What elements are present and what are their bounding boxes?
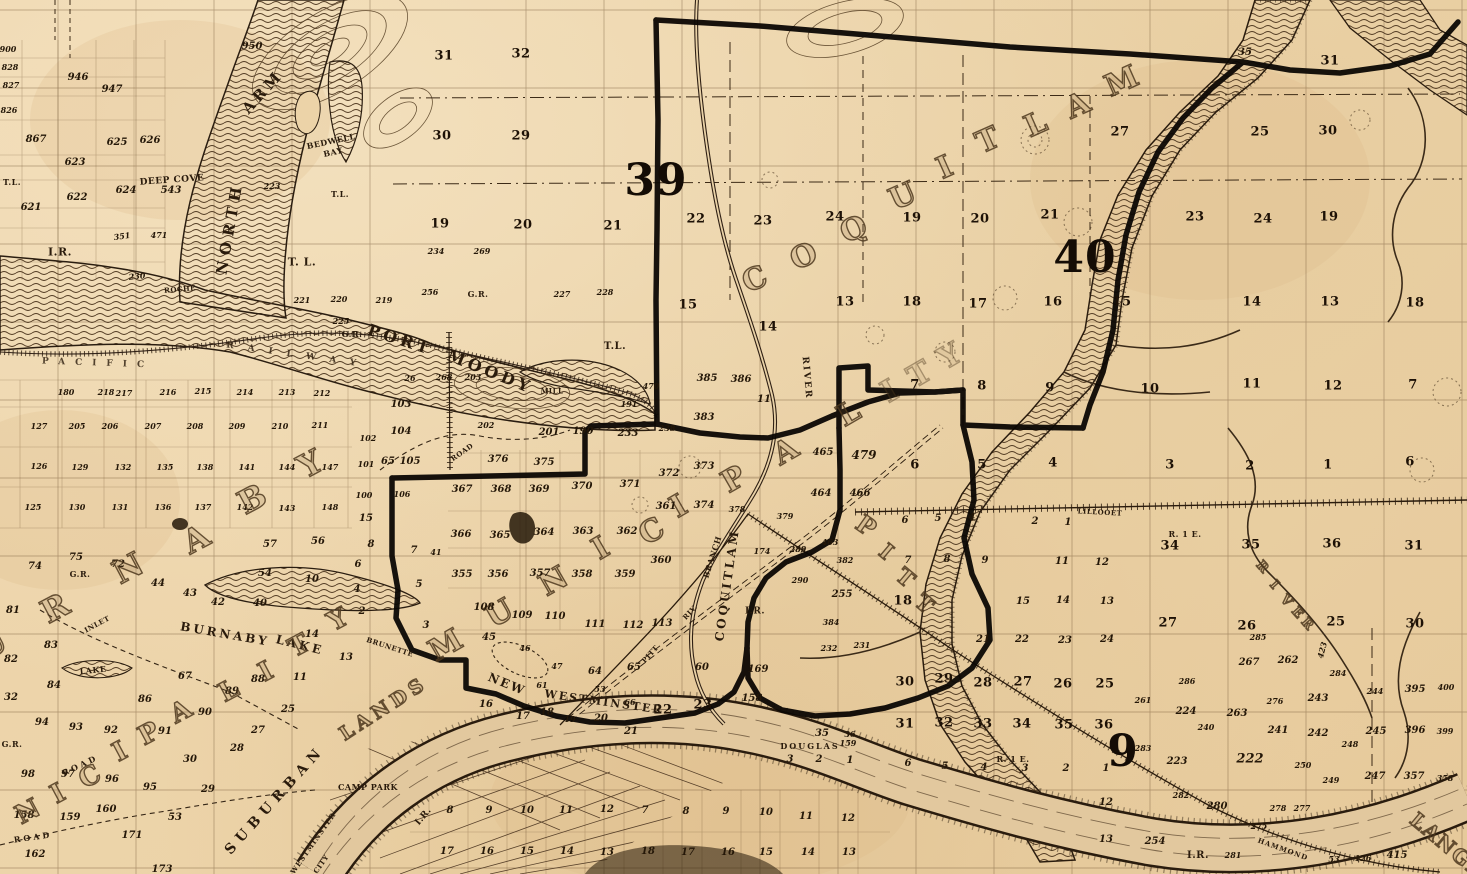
label-217: 217	[116, 389, 133, 397]
label-3: 3	[423, 621, 430, 631]
label-159: 159	[60, 813, 81, 823]
label-19: 19	[1319, 211, 1338, 224]
label-r: R	[36, 588, 75, 629]
label-276: 276	[1267, 697, 1284, 705]
label-i: I	[932, 151, 957, 184]
label-mill: MILL	[541, 388, 564, 395]
label-281: 281	[1225, 851, 1242, 859]
label-223: 223	[264, 182, 281, 190]
label-828: 828	[2, 63, 19, 71]
label-53: 53	[1328, 855, 1339, 863]
label-57: 57	[263, 540, 277, 550]
label-9: 9	[486, 806, 493, 816]
label-40: 40	[1053, 236, 1116, 280]
label-65: 65	[627, 663, 641, 673]
label-t-l-: T.L.	[3, 178, 21, 186]
label-158: 158	[742, 694, 763, 704]
label-104: 104	[391, 427, 412, 437]
label-30: 30	[183, 755, 197, 765]
label-10: 10	[305, 575, 319, 585]
label-o: O	[786, 238, 822, 276]
label-463: 463	[822, 538, 839, 546]
label-250: 250	[1295, 761, 1312, 769]
label-160: 160	[96, 805, 117, 815]
label-westminster: WESTMINSTER	[289, 811, 337, 874]
label-137: 137	[195, 503, 212, 511]
label-14: 14	[801, 848, 815, 858]
label-p: P	[852, 511, 881, 541]
label-280: 280	[1207, 802, 1228, 812]
label-247: 247	[1365, 772, 1386, 782]
label-28: 28	[973, 677, 992, 690]
label-40: 40	[253, 599, 267, 609]
label-11: 11	[799, 812, 813, 822]
label-t: T	[903, 356, 937, 393]
label-a: A	[166, 696, 196, 728]
label-34: 34	[1160, 540, 1179, 553]
label-19: 19	[564, 715, 575, 723]
label-q: Q	[836, 211, 872, 249]
label-26: 26	[1053, 678, 1072, 691]
label-241: 241	[1268, 726, 1289, 736]
label-24: 24	[1253, 213, 1272, 226]
label-n: N	[108, 547, 149, 589]
label-13: 13	[1320, 296, 1339, 309]
label-234: 234	[428, 247, 445, 255]
label-t: T	[911, 590, 938, 617]
label-13: 13	[600, 848, 614, 858]
label-19: 19	[430, 218, 449, 231]
label-249: 249	[1323, 776, 1340, 784]
label-31: 31	[434, 50, 453, 63]
label-285: 285	[1250, 633, 1267, 641]
label-g-r-: G.R.	[70, 570, 91, 578]
label-46: 46	[519, 644, 530, 652]
label-20: 20	[970, 213, 989, 226]
label-202: 202	[478, 421, 495, 429]
label-43: 43	[183, 589, 197, 599]
label-60: 60	[695, 663, 709, 673]
label-386: 386	[731, 375, 752, 385]
label-13: 13	[835, 296, 854, 309]
label-286: 286	[1179, 677, 1196, 685]
label-11: 11	[1242, 378, 1261, 391]
label-39: 39	[624, 159, 687, 203]
label-357: 357	[1404, 772, 1425, 782]
label-p: P	[134, 718, 163, 750]
label-2: 2	[1063, 764, 1070, 774]
label-25: 25	[1095, 678, 1114, 691]
label-210: 210	[272, 422, 289, 430]
label-14: 14	[560, 847, 574, 857]
label-17: 17	[440, 847, 454, 857]
label-44: 44	[151, 579, 165, 589]
label-101: 101	[358, 460, 375, 468]
label-e: E	[1289, 605, 1305, 621]
label-15: 15	[520, 847, 534, 857]
label-r-1-e-: R. 1 E.	[997, 755, 1030, 763]
label-16: 16	[721, 848, 735, 858]
label-96: 96	[105, 775, 119, 785]
label-16: 16	[480, 847, 494, 857]
label-371: 371	[620, 480, 641, 490]
label-180: 180	[58, 388, 75, 396]
label-3: 3	[1165, 459, 1175, 472]
label-626: 626	[140, 136, 161, 146]
label-36: 36	[1322, 538, 1341, 551]
label-g-r-: G.R.	[342, 330, 363, 338]
label-i-r-: I.R.	[1187, 851, 1209, 861]
label-136: 136	[155, 503, 172, 511]
label-8: 8	[368, 540, 375, 550]
label-209: 209	[229, 422, 246, 430]
label-city: CITY	[312, 853, 330, 874]
label-7: 7	[411, 546, 418, 556]
label-191: 191	[621, 400, 638, 408]
label-92: 92	[104, 726, 118, 736]
label-22: 22	[686, 213, 705, 226]
label-t-l-: T. L.	[288, 257, 317, 268]
label-240: 240	[1198, 723, 1215, 731]
label-11: 11	[1055, 557, 1069, 567]
label-27: 27	[251, 726, 265, 736]
label-12: 12	[600, 805, 614, 815]
label-42: 42	[211, 598, 225, 608]
label-15: 15	[1112, 296, 1131, 309]
label-bay: BAY	[322, 146, 343, 158]
label-75: 75	[69, 553, 83, 563]
label-127: 127	[31, 422, 48, 430]
label-359: 359	[615, 570, 636, 580]
label-2: 2	[816, 755, 823, 765]
label-10: 10	[1140, 383, 1159, 396]
label-214: 214	[237, 388, 254, 396]
label-26: 26	[1237, 620, 1256, 633]
label-lands: LANDS	[337, 674, 432, 745]
label-365: 365	[490, 531, 511, 541]
label-arm: ARM	[240, 67, 286, 116]
label-t: T	[892, 564, 919, 591]
label-y: Y	[292, 445, 327, 484]
label-374: 374	[694, 501, 715, 511]
label-207: 207	[145, 422, 162, 430]
label-14: 14	[758, 321, 777, 334]
label-205: 205	[69, 422, 86, 430]
label-23: 23	[693, 699, 712, 712]
label-84: 84	[47, 681, 61, 691]
label-947: 947	[102, 85, 123, 95]
label-9: 9	[723, 807, 730, 817]
label-132: 132	[115, 463, 132, 471]
label-4: 4	[1048, 457, 1058, 470]
label-r: R	[1299, 616, 1316, 633]
label-190: 190	[573, 427, 594, 437]
label-464: 464	[811, 489, 832, 499]
label-201: 201	[539, 428, 560, 438]
label-367: 367	[452, 485, 473, 495]
label-11: 11	[293, 673, 307, 683]
label-245: 245	[1366, 727, 1387, 737]
label-15: 15	[359, 514, 373, 524]
label-24: 24	[1100, 635, 1114, 645]
label-t: T	[972, 123, 1005, 159]
label-621: 621	[21, 203, 42, 213]
label-pitt: PITT	[640, 644, 659, 664]
label-358: 358	[1437, 774, 1454, 782]
label-t-l-: T.L.	[604, 342, 626, 352]
label-north: NORTH	[214, 180, 245, 275]
label-171: 171	[122, 831, 143, 841]
label-camp-park: CAMP PARK	[338, 783, 398, 791]
label-23: 23	[753, 215, 772, 228]
label-c: C	[75, 761, 105, 794]
label-86: 86	[138, 695, 152, 705]
label-r: R	[1254, 559, 1271, 576]
label-32: 32	[4, 693, 18, 703]
label-1: 1	[1323, 459, 1333, 472]
label-y: Y	[933, 339, 967, 376]
label-v: V	[1278, 593, 1294, 609]
label-144: 144	[279, 463, 296, 471]
label-25: 25	[1250, 126, 1269, 139]
label-m: M	[424, 625, 468, 668]
label-18: 18	[902, 296, 921, 309]
label-110: 110	[545, 612, 566, 622]
label-385: 385	[697, 374, 718, 384]
label-y: Y	[324, 604, 353, 636]
label-13: 13	[1099, 835, 1113, 845]
label-23: 23	[1058, 636, 1072, 646]
label-31: 31	[1320, 55, 1339, 68]
label-4: 4	[969, 513, 976, 523]
label-1: 1	[1065, 518, 1072, 528]
label-g-r-: G.R.	[2, 740, 23, 748]
label-21: 21	[624, 727, 638, 737]
label-64: 64	[588, 667, 602, 677]
label-625: 625	[107, 138, 128, 148]
label-7: 7	[1408, 379, 1418, 392]
label-35: 35	[1238, 48, 1252, 58]
label-238: 238	[659, 424, 676, 432]
label-225: 225	[333, 317, 350, 325]
label-2: 2	[1032, 517, 1039, 527]
label-211: 211	[312, 421, 329, 429]
label-13: 13	[339, 653, 353, 663]
label-267: 267	[1239, 658, 1260, 668]
label-41: 41	[430, 548, 441, 556]
label-i: I	[47, 780, 70, 809]
label-pacific: PACIFIC	[42, 358, 154, 371]
label-826: 826	[1, 106, 18, 114]
label-l: L	[215, 675, 243, 707]
label-i-r-: I.R.	[48, 247, 72, 258]
label-622: 622	[67, 193, 88, 203]
label-174: 174	[754, 547, 771, 555]
label-35: 35	[1241, 539, 1260, 552]
label-c: C	[738, 261, 772, 298]
label-67: 67	[178, 672, 192, 682]
label-35: 35	[815, 729, 829, 739]
label-29: 29	[201, 785, 215, 795]
label-18: 18	[641, 847, 655, 857]
label-21: 21	[603, 220, 622, 233]
label-372: 372	[659, 469, 680, 479]
label-i-r-: I.R.	[745, 608, 765, 617]
label-28: 28	[230, 744, 244, 754]
label-867: 867	[26, 135, 47, 145]
label-17: 17	[516, 712, 530, 722]
label-c: C	[634, 513, 670, 551]
label-243: 243	[1308, 694, 1329, 704]
label-river: RIVER	[800, 356, 813, 400]
label-21: 21	[1040, 209, 1059, 222]
label-361: 361	[656, 502, 677, 512]
label-244: 244	[1367, 687, 1384, 695]
label-378: 378	[729, 505, 746, 513]
label-4: 4	[354, 585, 361, 595]
label-langley: LANGLEY	[1407, 809, 1467, 874]
label-14: 14	[305, 630, 319, 640]
label-54: 54	[258, 569, 272, 579]
label-30: 30	[1318, 125, 1337, 138]
label-14: 14	[1242, 296, 1261, 309]
label-395: 395	[1405, 685, 1426, 695]
label-inlet: INLET	[83, 614, 111, 633]
label-74: 74	[28, 562, 42, 572]
label-8: 8	[944, 555, 951, 565]
label-242: 242	[1308, 729, 1329, 739]
label-221: 221	[294, 296, 311, 304]
label-11: 11	[559, 806, 573, 816]
label-23: 23	[1185, 211, 1204, 224]
label-20: 20	[513, 219, 532, 232]
label-45: 45	[482, 633, 496, 643]
label-2: 2	[1245, 460, 1255, 473]
label-8: 8	[683, 807, 690, 817]
label-10: 10	[759, 808, 773, 818]
label-379: 379	[777, 512, 794, 520]
label-213: 213	[279, 388, 296, 396]
label-29: 29	[934, 673, 953, 686]
label-173: 173	[152, 865, 173, 874]
label-16: 16	[1043, 296, 1062, 309]
label-25: 25	[1326, 616, 1345, 629]
label-369: 369	[529, 485, 550, 495]
label-356: 356	[488, 570, 509, 580]
label-248: 248	[1342, 740, 1359, 748]
label-268: 268	[436, 373, 453, 381]
label-p: P	[717, 461, 752, 498]
label-l: L	[1020, 107, 1051, 143]
label-b: B	[233, 479, 272, 520]
label-14: 14	[1056, 596, 1070, 606]
label-4: 4	[981, 763, 988, 773]
label-33: 33	[973, 718, 992, 731]
label-471: 471	[151, 231, 168, 239]
label-a: A	[178, 519, 215, 559]
label-t-l-: T.L.	[331, 190, 349, 198]
label-399: 399	[1437, 727, 1454, 735]
label-366: 366	[451, 530, 472, 540]
label-125: 125	[25, 503, 42, 511]
label-15: 15	[678, 299, 697, 312]
label-31: 31	[1404, 540, 1423, 553]
label-219: 219	[376, 296, 393, 304]
label-i: I	[876, 375, 903, 408]
label-port: PORT	[366, 322, 435, 358]
label-hammond: HAMMOND	[1257, 837, 1309, 862]
label-29: 29	[511, 130, 530, 143]
label-230: 230	[128, 271, 145, 281]
label-269: 269	[474, 247, 491, 255]
label-27: 27	[1158, 617, 1177, 630]
label-5: 5	[935, 514, 942, 524]
label-384: 384	[823, 618, 840, 626]
label-277: 277	[1294, 804, 1311, 812]
label-131: 131	[112, 503, 129, 511]
label-93: 93	[69, 723, 83, 733]
label-2: 2	[359, 607, 366, 617]
label-423: 423	[1316, 641, 1328, 659]
label-12: 12	[1099, 798, 1113, 808]
label-216: 216	[160, 388, 177, 396]
label-burnaby: BURNABY	[179, 620, 270, 648]
label-290: 290	[792, 576, 809, 584]
label-i: I	[875, 540, 897, 563]
label-126: 126	[31, 462, 48, 470]
label-7: 7	[642, 806, 649, 816]
label-25: 25	[281, 705, 295, 715]
label-53: 53	[168, 813, 182, 823]
label-riv-: RIV.	[681, 603, 698, 621]
label-278: 278	[1270, 804, 1287, 812]
label-100: 100	[356, 491, 373, 499]
label-103: 103	[391, 400, 412, 410]
label-5: 5	[416, 580, 423, 590]
label-27: 27	[1013, 676, 1032, 689]
label-143: 143	[279, 504, 296, 512]
label-262: 262	[1278, 656, 1299, 666]
label-6: 6	[1405, 456, 1415, 469]
label-douglas: DOUGLAS	[780, 742, 839, 750]
label-400: 400	[1438, 683, 1455, 691]
label-30: 30	[1405, 618, 1424, 631]
label-218: 218	[98, 388, 115, 396]
label-233: 233	[618, 429, 639, 439]
label-a: A	[1061, 88, 1094, 125]
label-220: 220	[331, 295, 348, 303]
label-branch: BRANCH	[701, 535, 722, 579]
label-284: 284	[1330, 669, 1347, 677]
label-12: 12	[1323, 380, 1342, 393]
label-351: 351	[113, 231, 131, 241]
label-282: 282	[1173, 791, 1190, 799]
label-i: I	[109, 738, 132, 767]
label-18: 18	[1405, 297, 1424, 310]
label-roche: ROCHE	[164, 284, 196, 294]
label-53: 53	[594, 685, 605, 693]
label-22: 22	[1015, 635, 1029, 645]
label-g-r-: G.R.	[468, 290, 489, 298]
label-106: 106	[394, 490, 411, 498]
label-17: 17	[681, 848, 695, 858]
label-3: 3	[787, 755, 794, 765]
label-13: 13	[1100, 597, 1114, 607]
label-20: 20	[594, 714, 608, 724]
label-256: 256	[422, 288, 439, 296]
label-376: 376	[488, 455, 509, 465]
label-479: 479	[851, 449, 876, 461]
